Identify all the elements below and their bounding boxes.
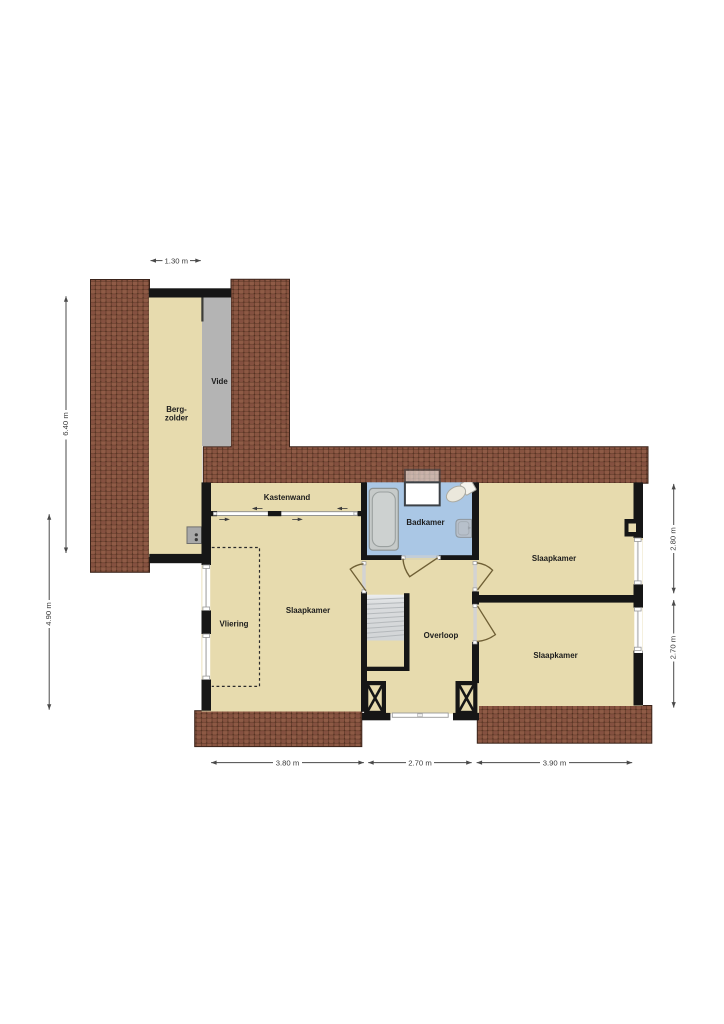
svg-text:2.70 m: 2.70 m: [408, 759, 432, 768]
svg-text:Vide: Vide: [211, 377, 228, 386]
svg-text:3.90 m: 3.90 m: [543, 759, 567, 768]
svg-text:Slaapkamer: Slaapkamer: [532, 554, 576, 563]
svg-text:2.80 m: 2.80 m: [669, 527, 678, 551]
svg-text:Overloop: Overloop: [424, 631, 459, 640]
svg-text:Badkamer: Badkamer: [406, 518, 444, 527]
svg-text:Vliering: Vliering: [220, 620, 249, 629]
svg-text:Slaapkamer: Slaapkamer: [286, 606, 330, 615]
svg-text:3.80 m: 3.80 m: [276, 759, 300, 768]
svg-text:Slaapkamer: Slaapkamer: [533, 651, 577, 660]
svg-text:zolder: zolder: [165, 413, 188, 422]
svg-text:Kastenwand: Kastenwand: [264, 493, 311, 502]
svg-text:1.30 m: 1.30 m: [165, 256, 189, 265]
svg-text:6.40 m: 6.40 m: [61, 412, 70, 436]
svg-text:2.70 m: 2.70 m: [669, 636, 678, 660]
svg-text:4.90 m: 4.90 m: [44, 602, 53, 626]
